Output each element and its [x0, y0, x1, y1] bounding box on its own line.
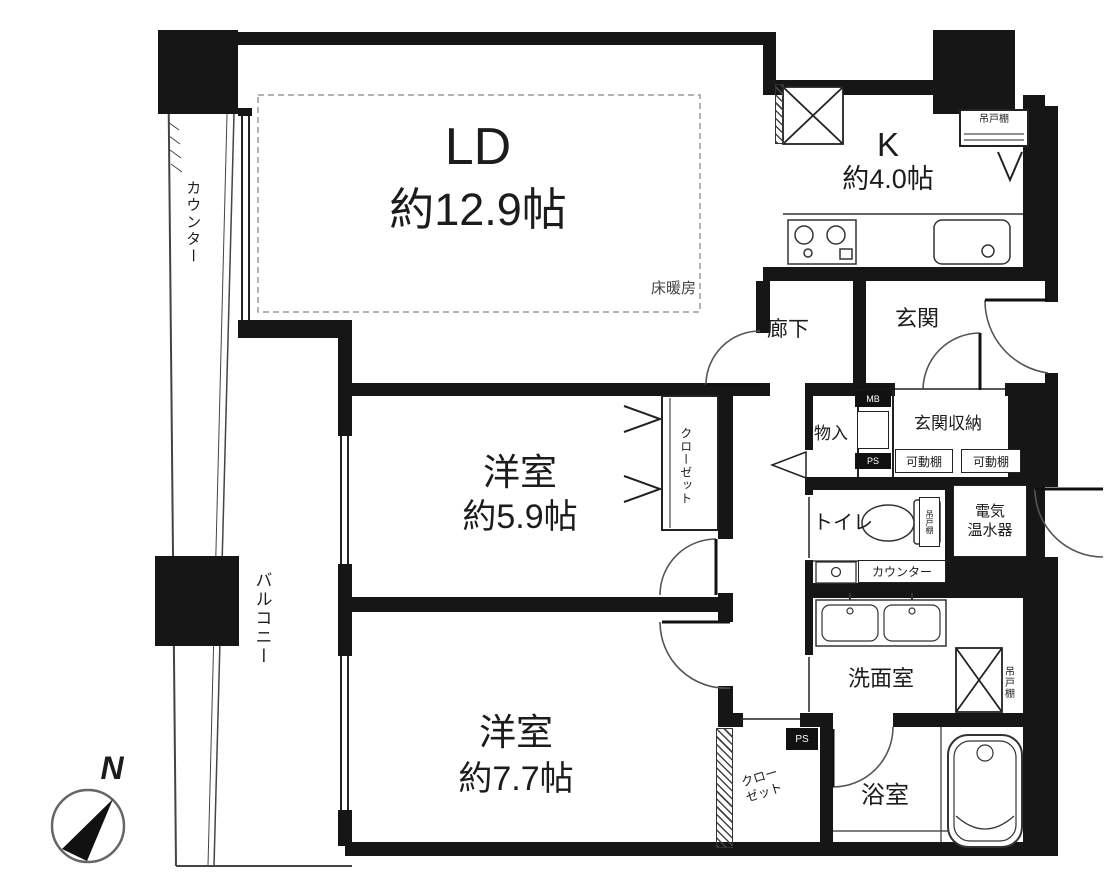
refrigerator-space-icon: [783, 87, 843, 144]
ld-name: LD: [378, 118, 578, 178]
vanity-icon: [816, 593, 946, 646]
washroom-label: 洗面室: [838, 666, 924, 691]
shaft-box: [857, 411, 889, 449]
storage-door-icon: [772, 452, 806, 478]
pipe-space-label: PS: [855, 453, 891, 469]
water-heater-box: 電気 温水器: [953, 485, 1027, 557]
bedroom1-name: 洋室: [420, 452, 620, 495]
water-heater-line2: 温水器: [967, 521, 1012, 541]
bedroom1-closet-label: クローゼット: [678, 408, 692, 524]
balcony-counter-label: カウンター: [184, 152, 201, 292]
kitchen-size: 約4.0帖: [818, 164, 958, 195]
hatch-strip-pipe: [716, 728, 733, 848]
toilet-shelf-label: 吊戸棚: [919, 497, 940, 547]
bathroom-label: 浴室: [852, 782, 918, 810]
hatch-strip-kitchen: [775, 84, 784, 144]
water-heater-line1: 電気: [975, 502, 1005, 522]
floor-heating-label: 床暖房: [560, 280, 696, 297]
bedroom2-size: 約7.7帖: [396, 760, 636, 799]
floor-plan: LD 約12.9帖 床暖房 K 約4.0帖 吊戸棚 洋室 約5.9帖 クローゼッ…: [0, 0, 1120, 892]
entrance-storage-label: 玄関収納: [898, 414, 998, 434]
corridor-pipe-space-label: PS: [786, 728, 818, 750]
toilet-counter-label: カウンター: [858, 560, 946, 583]
ld-size: 約12.9帖: [338, 184, 618, 236]
compass-icon: [52, 790, 124, 862]
kitchen-fixtures: [783, 214, 1023, 264]
kitchen-name: K: [838, 126, 938, 164]
bedroom2-name: 洋室: [416, 712, 616, 755]
balcony-label: バルコニー: [252, 528, 272, 708]
compass-north-label: N: [92, 750, 132, 787]
sink-icon: [934, 220, 1010, 264]
washroom-shelf-label: 吊戸棚: [1002, 650, 1014, 714]
kitchen-shelf-label: 吊戸棚: [962, 114, 1026, 126]
movable-shelf-1: 可動棚: [895, 449, 953, 473]
entrance-label: 玄関: [880, 306, 954, 331]
hand-basin-icon: [816, 562, 856, 583]
washing-machine-space-icon: [956, 648, 1002, 712]
hallway-label: 廊下: [752, 318, 824, 342]
toilet-label: トイレ: [812, 512, 874, 535]
movable-shelf-2: 可動棚: [961, 449, 1021, 473]
meter-box-label: MB: [855, 391, 891, 407]
storage-label: 物入: [806, 424, 856, 444]
bedroom1-size: 約5.9帖: [400, 498, 640, 537]
